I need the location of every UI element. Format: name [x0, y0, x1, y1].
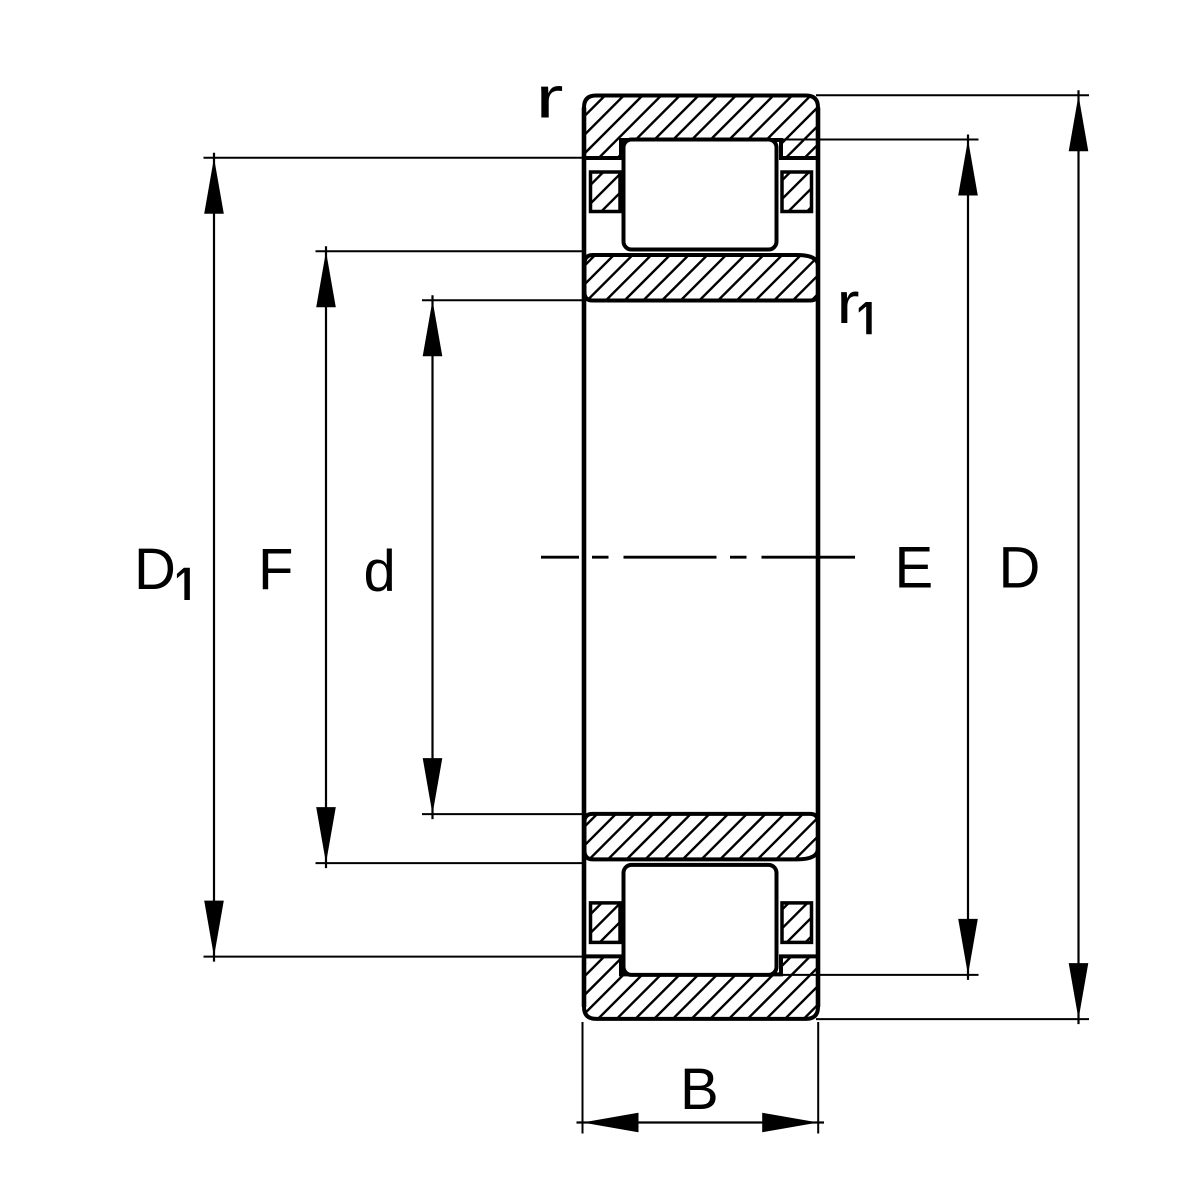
svg-text:r: r: [837, 271, 860, 336]
svg-text:B: B: [680, 1057, 719, 1122]
svg-text:E: E: [895, 536, 934, 601]
svg-text:D: D: [134, 537, 176, 602]
svg-text:D: D: [999, 536, 1041, 601]
svg-text:r: r: [536, 66, 564, 131]
svg-text:d: d: [364, 539, 396, 604]
svg-text:F: F: [258, 538, 293, 603]
